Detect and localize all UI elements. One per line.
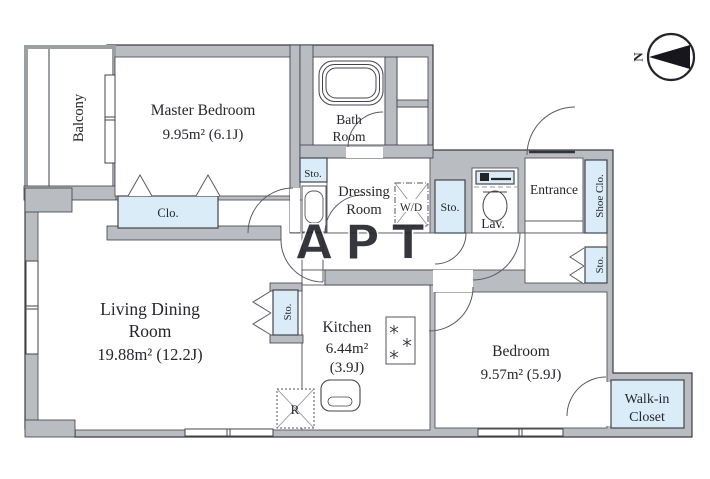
window-ldk-west [26,261,38,354]
closet-label: Clo. [157,206,178,220]
refrigerator-label: R [291,402,300,417]
wall-shaft-divider [397,100,428,107]
bedroom-area: 9.57m² (5.9J) [481,367,562,383]
balcony-label: Balcony [71,93,87,142]
watermark: APT [295,215,436,271]
bath-label-line2: Room [332,129,366,144]
kitchen-label: Kitchen [322,319,371,336]
sto-dressing-label: Sto. [304,168,322,180]
wall-kitchen-sto-bottom [270,335,303,343]
room-bedroom [435,292,607,428]
balcony-area [24,47,116,200]
lavatory-label: Lav. [481,216,505,231]
shoe-closet-label: Shoe Clo. [594,174,606,218]
utility-shaft-top [397,57,428,102]
gas-stove [386,317,415,364]
walk-in-closet-label-line1: Walk-in [625,392,670,407]
north-arrow: N [631,34,695,80]
wall-bath-east [385,57,397,147]
master-bedroom-area: 9.95m² (6.1J) [163,127,244,143]
dressing-label-line1: Dressing [338,184,390,200]
door-arc-front-door [527,107,575,155]
wall-bath-west [300,45,313,158]
wall-kitchen-north [325,270,435,285]
kitchen-sink [321,380,360,411]
living-dining-label-line2: Room [129,321,172,341]
sto-hall-label: Sto. [440,200,459,214]
opening-bath-door [346,147,383,158]
bath-label-line1: Bath [336,112,362,127]
entrance-label: Entrance [530,182,578,197]
window-bedroom-south [478,429,563,436]
wall-corner-block [25,188,72,212]
sto-entry-label: Sto. [595,257,606,274]
kitchen-area-line2: (3.9J) [330,360,365,376]
walk-in-closet-label-line2: Closet [629,410,665,425]
kitchen-area-line1: 6.44m² [326,341,369,357]
washer-dryer-label: W/D [400,202,422,214]
opening-wic-door [605,382,611,426]
window-master-west [105,75,115,163]
utility-shaft-bottom [397,107,428,146]
floor-plan: N Balcony Master Bedroom 9.95m² (6.1J) B… [0,0,710,479]
floor-plan-drawing: N Balcony Master Bedroom 9.95m² (6.1J) B… [0,0,710,479]
bedroom-label: Bedroom [492,343,550,360]
living-dining-area: 19.88m² (12.2J) [97,345,202,364]
master-bedroom-label: Master Bedroom [151,102,256,119]
window-ldk-south [185,429,273,436]
sto-kitchen-label: Sto. [283,304,294,321]
wall-ldk-corner-step [25,420,75,437]
living-dining-label-line1: Living Dining [100,299,200,319]
opening-bedroom-door [433,270,473,292]
north-label: N [631,52,646,62]
